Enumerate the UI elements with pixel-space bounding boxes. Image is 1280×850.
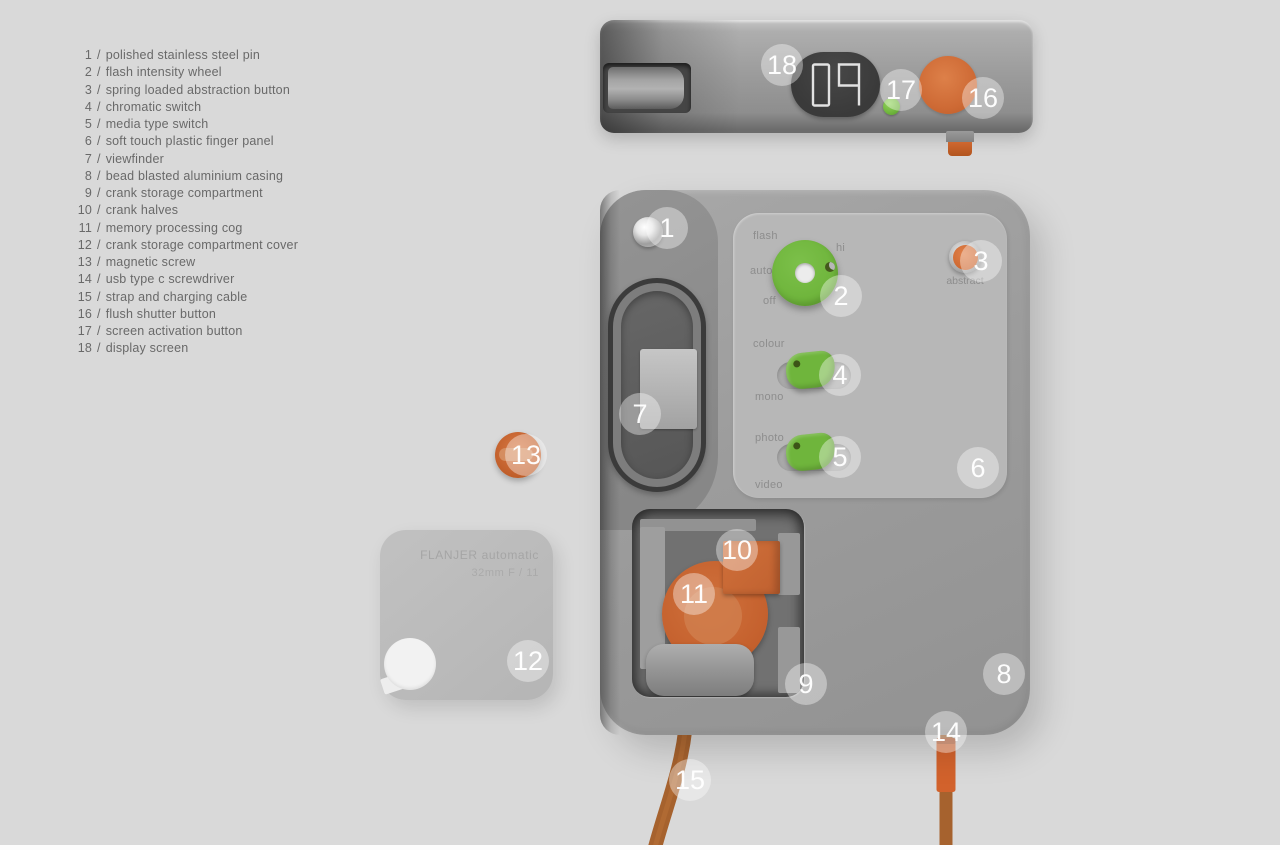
parts-list-item: 4/chromatic switch [74, 100, 298, 117]
callout-1: 1 [646, 207, 688, 249]
parts-list-item: 2/flash intensity wheel [74, 65, 298, 82]
part-label: flush shutter button [106, 307, 216, 321]
callout-12: 12 [507, 640, 549, 682]
label-auto: auto [750, 265, 773, 277]
callout-number: 4 [832, 360, 847, 391]
part-separator: / [97, 134, 101, 148]
label-photo: photo [755, 432, 784, 444]
part-number: 9 [74, 186, 92, 200]
callout-2: 2 [820, 275, 862, 317]
callout-9: 9 [785, 663, 827, 705]
callout-number: 7 [632, 399, 647, 430]
part-number: 2 [74, 65, 92, 79]
part-label: crank storage compartment cover [106, 238, 298, 252]
callout-16: 16 [962, 77, 1004, 119]
part-label: chromatic switch [106, 100, 202, 114]
connector-port-top [946, 131, 974, 142]
part-label: flash intensity wheel [106, 65, 222, 79]
part-separator: / [97, 221, 101, 235]
part-separator: / [97, 152, 101, 166]
top-view-roller [608, 67, 684, 109]
part-label: usb type c screwdriver [106, 272, 235, 286]
callout-number: 18 [767, 50, 797, 81]
part-separator: / [97, 117, 101, 131]
part-separator: / [97, 290, 101, 304]
display-digits-icon [811, 63, 861, 107]
part-label: display screen [106, 341, 189, 355]
callout-6: 6 [957, 447, 999, 489]
part-number: 5 [74, 117, 92, 131]
callout-number: 3 [973, 246, 988, 277]
callout-number: 17 [886, 75, 916, 106]
display-screen: 09 [791, 52, 880, 117]
callout-number: 5 [832, 442, 847, 473]
part-label: bead blasted aluminium casing [106, 169, 283, 183]
part-separator: / [97, 238, 101, 252]
callout-7: 7 [619, 393, 661, 435]
callout-5: 5 [819, 436, 861, 478]
part-number: 7 [74, 152, 92, 166]
part-separator: / [97, 324, 101, 338]
part-number: 6 [74, 134, 92, 148]
parts-list-item: 13/magnetic screw [74, 255, 298, 272]
callout-number: 13 [511, 440, 541, 471]
part-separator: / [97, 255, 101, 269]
parts-list-item: 9/crank storage compartment [74, 186, 298, 203]
parts-list-item: 15/strap and charging cable [74, 290, 298, 307]
callout-number: 15 [675, 765, 705, 796]
label-colour: colour [753, 338, 785, 350]
part-number: 11 [74, 221, 92, 235]
label-video: video [755, 479, 783, 491]
callout-4: 4 [819, 354, 861, 396]
parts-list-item: 10/crank halves [74, 203, 298, 220]
callout-number: 2 [833, 281, 848, 312]
part-number: 10 [74, 203, 92, 217]
wheel-indicator-icon [825, 262, 835, 272]
callout-number: 1 [659, 213, 674, 244]
callout-3: 3 [960, 240, 1002, 282]
callout-8: 8 [983, 653, 1025, 695]
callout-15: 15 [669, 759, 711, 801]
cover-lens-cutout [384, 638, 436, 690]
parts-list-item: 6/soft touch plastic finger panel [74, 134, 298, 151]
parts-list-item: 16/flush shutter button [74, 307, 298, 324]
part-number: 8 [74, 169, 92, 183]
part-separator: / [97, 186, 101, 200]
callout-11: 11 [673, 573, 715, 615]
part-number: 13 [74, 255, 92, 269]
part-separator: / [97, 65, 101, 79]
wheel-hole [795, 263, 815, 283]
label-mono: mono [755, 391, 784, 403]
part-number: 14 [74, 272, 92, 286]
callout-14: 14 [925, 711, 967, 753]
callout-number: 10 [722, 535, 752, 566]
part-number: 1 [74, 48, 92, 62]
part-separator: / [97, 48, 101, 62]
callout-13: 13 [505, 434, 547, 476]
bottom-white-strip [0, 845, 1280, 850]
parts-list-item: 5/media type switch [74, 117, 298, 134]
part-label: media type switch [106, 117, 209, 131]
part-label: spring loaded abstraction button [106, 83, 290, 97]
callout-number: 8 [996, 659, 1011, 690]
parts-list-item: 18/display screen [74, 341, 298, 358]
switch-dot-icon [793, 360, 801, 368]
part-number: 15 [74, 290, 92, 304]
part-number: 17 [74, 324, 92, 338]
part-number: 18 [74, 341, 92, 355]
callout-number: 14 [931, 717, 961, 748]
callout-17: 17 [880, 69, 922, 111]
crank-cylinder [646, 644, 754, 696]
part-separator: / [97, 83, 101, 97]
callout-number: 12 [513, 646, 543, 677]
label-hi: hi [836, 242, 845, 254]
part-number: 3 [74, 83, 92, 97]
part-separator: / [97, 100, 101, 114]
viewfinder-inner [621, 291, 693, 479]
parts-list-item: 17/screen activation button [74, 324, 298, 341]
connector-port-plug [948, 142, 972, 156]
callout-number: 16 [968, 83, 998, 114]
part-separator: / [97, 169, 101, 183]
callout-number: 11 [680, 579, 708, 610]
label-off: off [763, 295, 776, 307]
part-label: magnetic screw [106, 255, 196, 269]
callout-10: 10 [716, 529, 758, 571]
part-separator: / [97, 307, 101, 321]
part-label: soft touch plastic finger panel [106, 134, 274, 148]
part-separator: / [97, 203, 101, 217]
part-label: viewfinder [106, 152, 164, 166]
parts-list-item: 3/spring loaded abstraction button [74, 83, 298, 100]
part-label: crank storage compartment [106, 186, 263, 200]
switch-dot-icon [793, 442, 801, 450]
part-label: crank halves [106, 203, 179, 217]
part-label: strap and charging cable [106, 290, 248, 304]
part-label: memory processing cog [106, 221, 243, 235]
parts-list-item: 8/bead blasted aluminium casing [74, 169, 298, 186]
cover-brand-text: FLANJER automatic [420, 548, 539, 562]
compartment-right-rail-top [778, 533, 800, 595]
parts-list: 1/polished stainless steel pin 2/flash i… [74, 48, 298, 359]
cover-spec-text: 32mm F / 11 [420, 567, 539, 579]
parts-list-item: 12/crank storage compartment cover [74, 238, 298, 255]
top-view-roller-recess [603, 63, 691, 113]
part-number: 16 [74, 307, 92, 321]
part-separator: / [97, 341, 101, 355]
crank-storage-compartment [632, 509, 804, 697]
callout-number: 6 [970, 453, 985, 484]
callout-18: 18 [761, 44, 803, 86]
part-number: 4 [74, 100, 92, 114]
part-label: screen activation button [106, 324, 243, 338]
parts-list-item: 14/usb type c screwdriver [74, 272, 298, 289]
callout-number: 9 [798, 669, 813, 700]
viewfinder [608, 278, 706, 492]
cover-engraving: FLANJER automatic 32mm F / 11 [420, 548, 539, 579]
part-separator: / [97, 272, 101, 286]
parts-list-item: 1/polished stainless steel pin [74, 48, 298, 65]
part-label: polished stainless steel pin [106, 48, 260, 62]
parts-list-item: 7/viewfinder [74, 152, 298, 169]
camera-top-view: 09 [600, 20, 1033, 133]
label-flash: flash [753, 230, 778, 242]
design-board: 1/polished stainless steel pin 2/flash i… [0, 0, 1280, 850]
parts-list-item: 11/memory processing cog [74, 221, 298, 238]
part-number: 12 [74, 238, 92, 252]
